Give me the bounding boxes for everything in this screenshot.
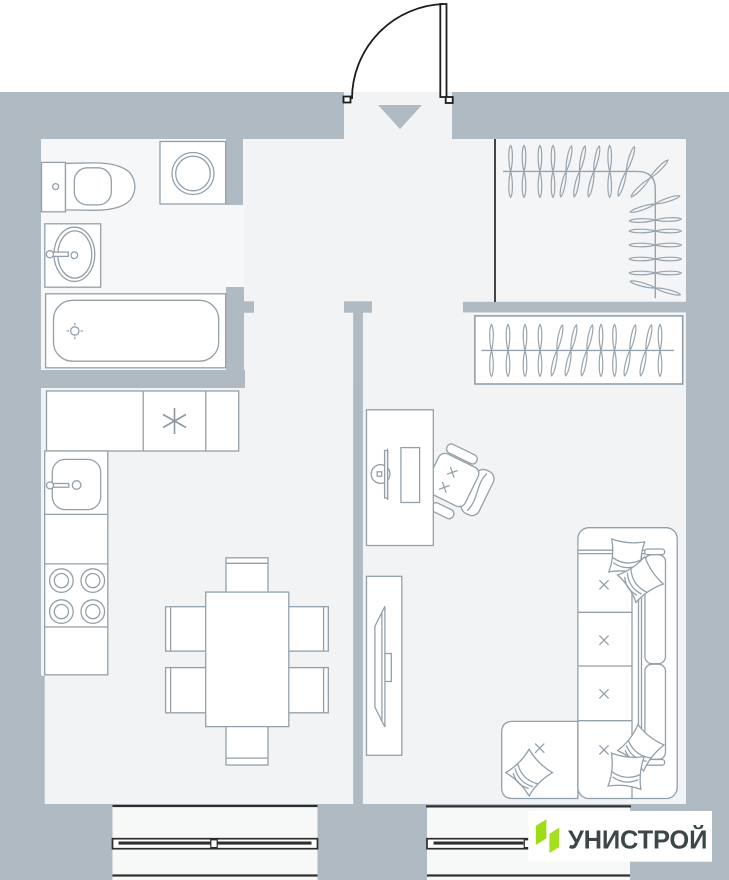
svg-text:УНИСТРОЙ: УНИСТРОЙ <box>568 824 707 854</box>
